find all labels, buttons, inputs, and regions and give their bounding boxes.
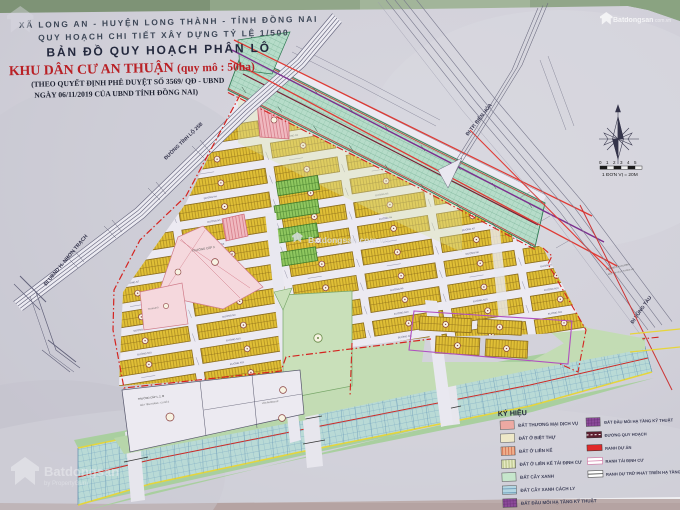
svg-text:RANH DỰ ÁN: RANH DỰ ÁN bbox=[605, 445, 632, 451]
svg-text:by PropertyGuru: by PropertyGuru bbox=[44, 481, 88, 487]
svg-text:Batdongsan: Batdongsan bbox=[44, 464, 119, 479]
svg-text:com.vn: com.vn bbox=[655, 18, 671, 24]
svg-text:ĐẤT CÂY XANH: ĐẤT CÂY XANH bbox=[520, 473, 554, 480]
svg-text:Batdongsan: Batdongsan bbox=[613, 17, 653, 24]
svg-text:KÝ HIỆU: KÝ HIỆU bbox=[498, 408, 527, 418]
svg-text:1 ĐƠN VỊ = 20M: 1 ĐƠN VỊ = 20M bbox=[602, 172, 638, 178]
svg-text:Batdongsan.com.vn: Batdongsan.com.vn bbox=[308, 235, 389, 245]
